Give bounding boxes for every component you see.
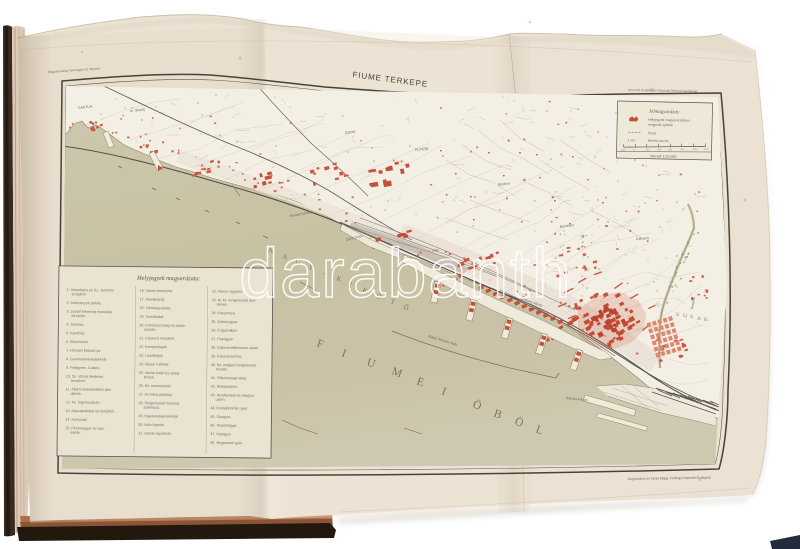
- svg-text:12. Kir. fogymnasium.: 12. Kir. fogymnasium.: [66, 400, 101, 404]
- svg-text:U: U: [683, 313, 687, 319]
- svg-text:22. Komporhajok.: 22. Komporhajok.: [139, 345, 168, 349]
- svg-text:kioszk.: kioszk.: [144, 375, 155, 379]
- svg-text:26. Kir. torvenyszek.: 26. Kir. torvenyszek.: [139, 384, 172, 388]
- svg-text:32. Varosi vagohid.: 32. Varosi vagohid.: [212, 289, 243, 293]
- svg-text:48. Vegyeszeti gyar.: 48. Vegyeszeti gyar.: [210, 441, 243, 445]
- svg-text:17. Aruraktarak.: 17. Aruraktarak.: [140, 297, 166, 301]
- svg-text:2. Kormanyzoi palota.: 2. Kormanyzoi palota.: [67, 301, 102, 305]
- svg-text:38. Katonai elelmezesi raktar.: 38. Katonai elelmezesi raktar.: [211, 346, 259, 350]
- svg-text:hivatal.: hivatal.: [216, 367, 228, 371]
- svg-text:34. Kaszarnya.: 34. Kaszarnya.: [211, 311, 235, 315]
- svg-text:7. Honved kaszarnya.: 7. Honved kaszarnya.: [66, 348, 101, 352]
- svg-text:Helyjegyek magyarázata:: Helyjegyek magyarázata:: [136, 275, 200, 283]
- svg-text:S: S: [690, 314, 693, 320]
- svg-text:27. Az Adria palotaja.: 27. Az Adria palotaja.: [139, 393, 173, 397]
- svg-text:es kertje.: es kertje.: [71, 314, 86, 318]
- svg-text:templom.: templom.: [72, 292, 87, 296]
- svg-text:darabanth: darabanth: [239, 234, 572, 312]
- svg-text:29. Kapitanysag kikotoje.: 29. Kapitanysag kikotoje.: [138, 414, 179, 418]
- svg-text:45. Gazgyar.: 45. Gazgyar.: [210, 415, 231, 419]
- svg-text:szekhaza.: szekhaza.: [143, 405, 159, 409]
- svg-text:46. Torpedogyar.: 46. Torpedogyar.: [210, 423, 237, 427]
- svg-text:templom.: templom.: [71, 379, 86, 383]
- svg-text:A: A: [697, 316, 701, 322]
- svg-text:6. Bora-fured.: 6. Bora-fured.: [66, 340, 88, 344]
- svg-text:Jelmagyarázat:: Jelmagyarázat:: [649, 110, 681, 116]
- svg-text:8. Gyermekmenedekhely.: 8. Gyermekmenedekhely.: [66, 357, 107, 361]
- svg-text:uzem.: uzem.: [216, 398, 226, 402]
- svg-text:Mertek 1:25.000: Mertek 1:25.000: [650, 154, 676, 159]
- svg-text:megjelolt epletek: megjelolt epletek: [648, 123, 673, 128]
- svg-text:19. Vamhivatal.: 19. Vamhivatal.: [139, 315, 164, 319]
- svg-text:42. Riskamalom.: 42. Riskamalom.: [211, 385, 238, 389]
- svg-text:23. Lloydhajok.: 23. Lloydhajok.: [139, 354, 164, 358]
- svg-text:demia.: demia.: [71, 392, 82, 396]
- svg-text:36. Fogyaraktar.: 36. Fogyaraktar.: [211, 328, 237, 332]
- svg-text:4. Szinhaz.: 4. Szinhaz.: [66, 323, 84, 327]
- svg-text:16. Varosi toronyora.: 16. Varosi toronyora.: [140, 289, 174, 293]
- svg-text:1 cm: 1 cm: [628, 138, 635, 142]
- svg-text:44. Koolajfinomito gyar.: 44. Koolajfinomito gyar.: [210, 406, 248, 410]
- svg-text:21. Ciszterci templom.: 21. Ciszterci templom.: [139, 336, 175, 340]
- svg-text:18. Tolonkepviselet.: 18. Tolonkepviselet.: [140, 306, 172, 310]
- svg-text:S: S: [676, 312, 679, 318]
- svg-text:24. Vasuti indohaz.: 24. Vasuti indohaz.: [139, 362, 170, 366]
- svg-text:tavirda.: tavirda.: [144, 328, 156, 332]
- svg-text:35. Dohanygyar.: 35. Dohanygyar.: [211, 320, 238, 324]
- svg-text:K: K: [704, 317, 708, 323]
- svg-text:31. Varosi nepiskola.: 31. Varosi nepiskola.: [138, 431, 172, 435]
- svg-text:30. Inda fogado.: 30. Inda fogado.: [138, 423, 164, 427]
- svg-text:9. Foldgymn. Casino.: 9. Foldgymn. Casino.: [66, 366, 100, 370]
- svg-text:14. Sohivatal.: 14. Sohivatal.: [65, 418, 87, 422]
- svg-text:1000: 1000: [693, 149, 699, 151]
- svg-text:5. Kavehaz.: 5. Kavehaz.: [66, 331, 85, 335]
- svg-text:41. Villamossagi telep.: 41. Villamossagi telep.: [211, 376, 247, 380]
- svg-text:iskola.: iskola.: [70, 431, 80, 435]
- svg-text:1200: 1200: [704, 149, 710, 151]
- svg-text:demia.: demia.: [217, 303, 228, 307]
- svg-text:47. Hajogyar.: 47. Hajogyar.: [210, 432, 231, 436]
- svg-text:Tavat: Tavat: [648, 131, 656, 135]
- svg-text:13. Apacakolostor es templom.: 13. Apacakolostor es templom.: [65, 409, 115, 414]
- svg-text:39. Katonai korhaz.: 39. Katonai korhaz.: [211, 354, 242, 358]
- svg-text:37. Papirgyar.: 37. Papirgyar.: [211, 337, 234, 341]
- svg-text:Mertek szerint: Mertek szerint: [648, 139, 669, 143]
